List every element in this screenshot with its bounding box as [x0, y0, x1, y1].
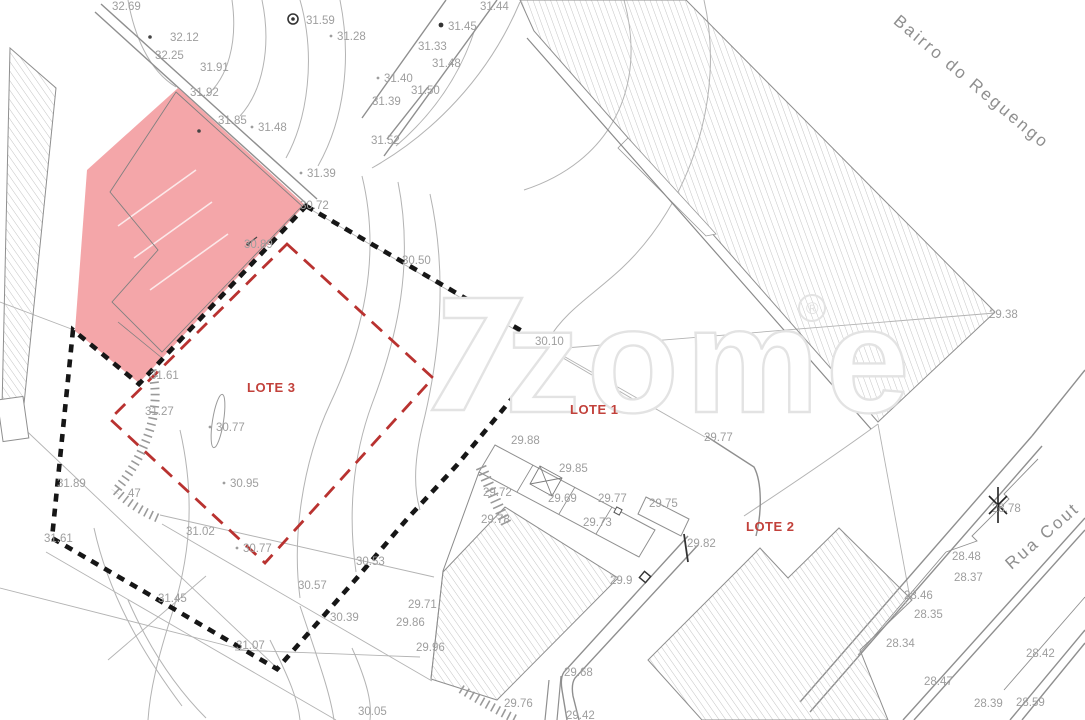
elevation-label: 29.68: [564, 667, 593, 679]
elevation-label: 28.42: [1026, 648, 1055, 660]
elevation-label: 31.44: [480, 1, 509, 13]
tree-outline-icon: [208, 393, 227, 448]
elevation-label: 47: [128, 488, 141, 500]
elevation-label: 28.37: [954, 572, 983, 584]
elevation-label: 30.95: [230, 478, 259, 490]
elevation-label: 29.96: [416, 642, 445, 654]
elevation-label: 30.50: [402, 255, 431, 267]
watermark: zome ®: [432, 276, 916, 444]
lot-label: LOTE 2: [746, 519, 795, 534]
lot-label: LOTE 3: [247, 380, 296, 395]
elevation-label: 31.50: [411, 85, 440, 97]
central-building-cluster: [431, 445, 689, 720]
elevation-label: 32.25: [155, 50, 184, 62]
elevation-label: 31.39: [307, 168, 336, 180]
elevation-label: 31.61: [44, 533, 73, 545]
elevation-label: 29.88: [511, 435, 540, 447]
lot-label: LOTE 1: [570, 402, 619, 417]
elevation-label: 28.59: [1016, 697, 1045, 709]
elevation-label: 29.72: [483, 487, 512, 499]
elevation-label: 29.82: [687, 538, 716, 550]
elevation-label: 29.77: [598, 493, 627, 505]
elevation-label: 29.75: [649, 498, 678, 510]
elevation-label: 30.72: [300, 200, 329, 212]
elevation-label: 29.9: [610, 575, 632, 587]
spot-point-dot: [251, 126, 254, 129]
watermark-registered: ®: [806, 299, 819, 318]
watermark-text: zome: [505, 276, 916, 444]
elevation-label: 30.77: [216, 422, 245, 434]
elevation-label: 31.89: [57, 478, 86, 490]
elevation-label: 31.45: [158, 593, 187, 605]
elevation-label: 30.57: [298, 580, 327, 592]
elevation-label: 30.77: [243, 543, 272, 555]
elevation-label: 29.86: [396, 617, 425, 629]
elevation-label: 28.39: [974, 698, 1003, 710]
elevation-label: 31.85: [218, 115, 247, 127]
left-hatched-building: [0, 48, 56, 442]
elevation-label: 28.34: [886, 638, 915, 650]
elevation-label: 28.47: [924, 676, 953, 688]
elevation-label: 31.28: [337, 31, 366, 43]
elevation-label: 30.39: [330, 612, 359, 624]
elevation-label: 29.71: [408, 599, 437, 611]
elevation-label: 31.61: [150, 370, 179, 382]
spot-point-dot: [209, 426, 212, 429]
plan-canvas: zome ® 32.6932.1232.2531.9131.5931.2831.…: [0, 0, 1085, 720]
elevation-label: 31.40: [384, 73, 413, 85]
elevation-label: 31.02: [186, 526, 215, 538]
elevation-label: 29.76: [504, 698, 533, 710]
elevation-label: 30.53: [356, 556, 385, 568]
spot-point-dot: [236, 547, 239, 550]
elevation-label: 31.33: [418, 41, 447, 53]
spot-point-dot: [223, 482, 226, 485]
elevation-label: 31.45: [448, 21, 477, 33]
street-name-label: Bairro do Reguengo: [890, 11, 1053, 152]
site-plan-drawing: zome ® 32.6932.1232.2531.9131.5931.2831.…: [0, 0, 1085, 720]
elevation-label: 29.42: [566, 710, 595, 720]
elevation-label: 31.59: [306, 15, 335, 27]
elevation-label: 31.48: [432, 58, 461, 70]
elevation-label: 31.07: [236, 640, 265, 652]
elevation-label: 30.05: [358, 706, 387, 718]
elevation-label: 30.10: [535, 336, 564, 348]
elevation-label: 29.85: [559, 463, 588, 475]
elevation-label: 28.46: [904, 590, 933, 602]
elevation-label: 29.69: [548, 493, 577, 505]
elevation-label: 29.78: [481, 514, 510, 526]
elevation-label: 31.52: [371, 135, 400, 147]
elevation-label: 29.77: [704, 432, 733, 444]
elevation-label: 28.48: [952, 551, 981, 563]
elevation-label: 28.35: [914, 609, 943, 621]
elevation-label: 28.78: [992, 503, 1021, 515]
elevation-label: 32.69: [112, 1, 141, 13]
spot-point-dot: [330, 35, 333, 38]
elevation-label: 29.38: [989, 309, 1018, 321]
post-square-icon: [639, 571, 650, 582]
elevation-label: 31.48: [258, 122, 287, 134]
elevation-label: 31.39: [372, 96, 401, 108]
elevation-label: 32.12: [170, 32, 199, 44]
elevation-label: 31.92: [190, 87, 219, 99]
spot-point-dot: [377, 77, 380, 80]
elevation-label: 30.89: [244, 239, 273, 251]
elevation-label: 31.27: [145, 406, 174, 418]
elevation-label: 31.91: [200, 62, 229, 74]
elevation-label: 29.73: [583, 517, 612, 529]
spot-point-dot: [300, 172, 303, 175]
